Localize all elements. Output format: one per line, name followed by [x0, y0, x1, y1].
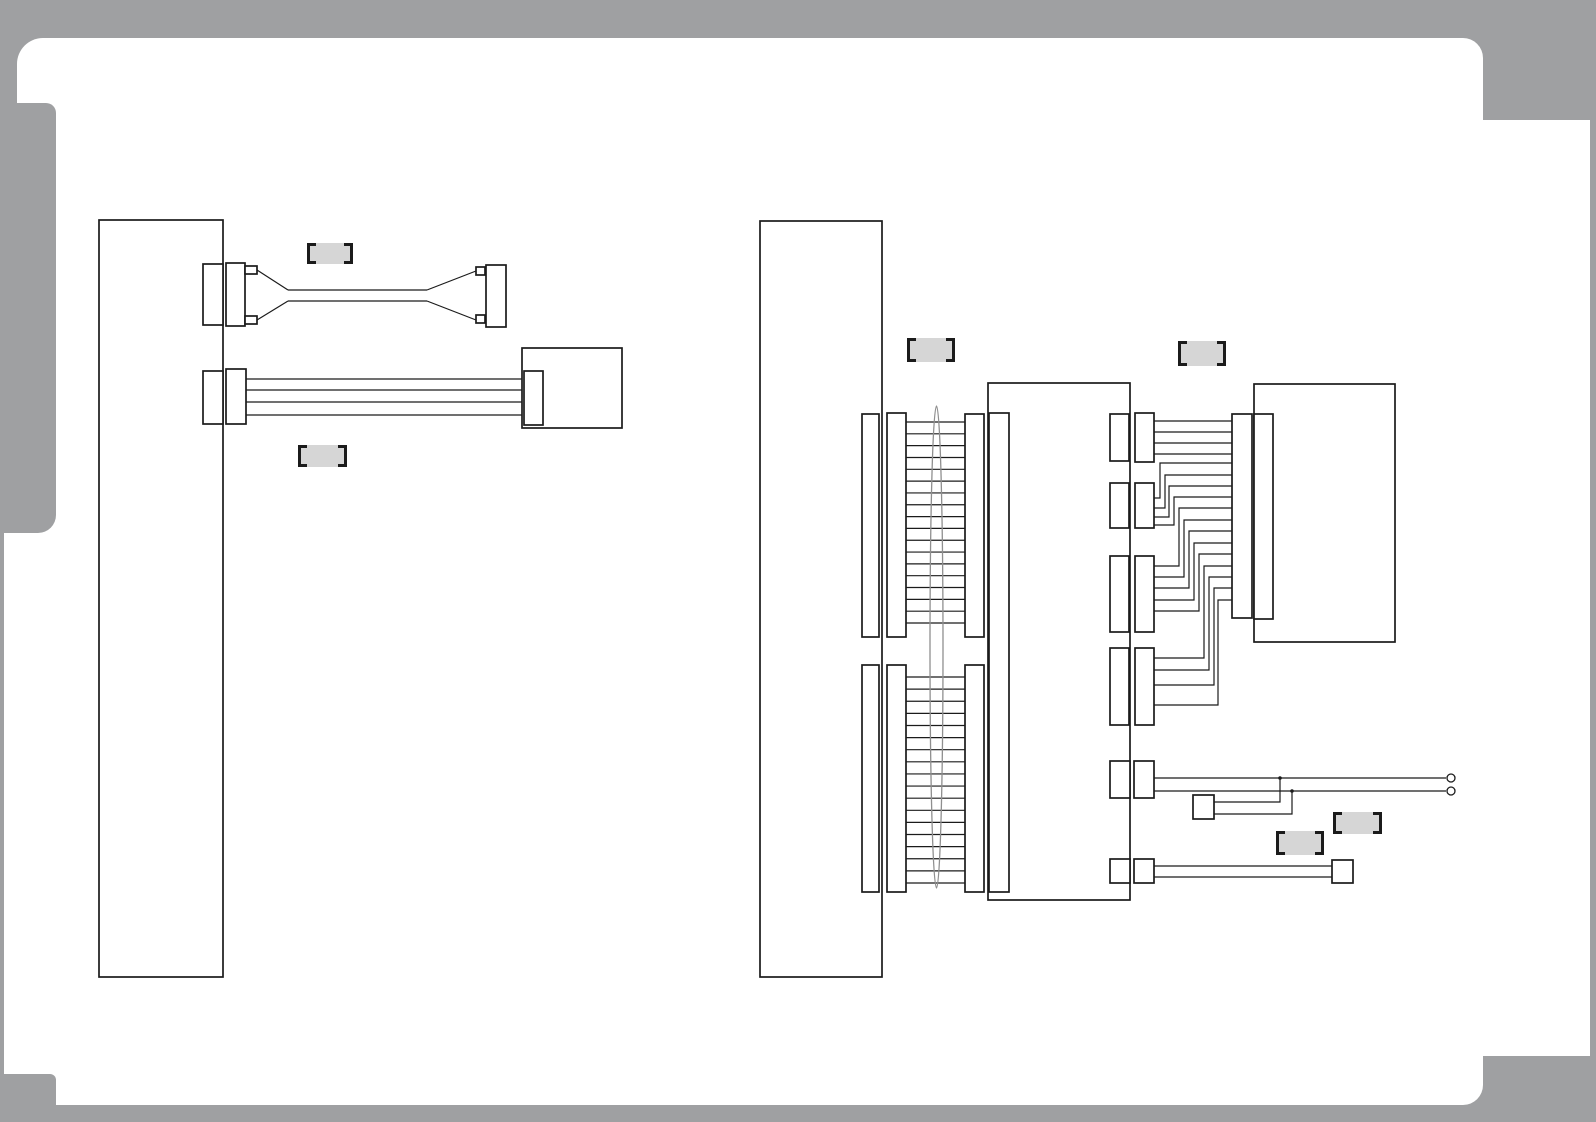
cable-pair-wires — [288, 290, 427, 301]
wire-junction — [1278, 776, 1282, 780]
right-board-assembly — [760, 221, 1455, 977]
lead-end-connector — [1332, 860, 1353, 883]
component-tap-wires — [1214, 778, 1292, 814]
unit-connector — [1110, 761, 1130, 798]
cable-connector — [486, 265, 506, 327]
label-fill — [300, 445, 345, 467]
label-fill — [1278, 831, 1322, 855]
cable-connector — [1135, 413, 1154, 462]
cable-fan-wire — [257, 270, 288, 290]
unit-connector — [1110, 556, 1129, 632]
label-fill — [1335, 812, 1380, 834]
cable-connector — [965, 414, 984, 637]
board-connector — [862, 665, 879, 892]
ring-terminal — [1447, 774, 1455, 782]
harness-wire — [1154, 554, 1232, 611]
cable-connector — [226, 263, 245, 326]
cable-connector-bar — [1232, 414, 1252, 618]
cable-fan-wire — [427, 301, 476, 320]
inline-component — [1193, 795, 1214, 819]
harness-wire — [1154, 497, 1232, 525]
unit-connector — [1110, 414, 1129, 461]
bottom-lead-assembly — [1110, 859, 1353, 883]
harness-wire — [1154, 520, 1232, 577]
part-label-6 — [1278, 831, 1323, 855]
ribbon-cable-wires — [246, 379, 524, 415]
cable-connector — [1135, 483, 1154, 528]
unit-connector — [1110, 483, 1129, 528]
wiring-diagram — [0, 0, 1596, 1122]
cable-bundle-loop — [930, 406, 943, 888]
ring-terminals — [1447, 774, 1455, 795]
harness-wire — [1154, 463, 1232, 498]
tap-wire — [1214, 778, 1280, 802]
board-connector — [203, 371, 223, 424]
harness-wire — [1154, 475, 1232, 508]
open-lead-assembly — [1110, 761, 1455, 819]
board-connector — [862, 414, 879, 637]
board-connector — [203, 264, 223, 325]
part-label-1 — [309, 243, 352, 264]
ribbon-ladder-wires — [906, 422, 965, 883]
harness-wire — [1154, 531, 1232, 588]
cable-fan-wire — [257, 301, 288, 320]
label-fill — [1180, 341, 1224, 366]
harness-wire — [1154, 543, 1232, 600]
cable-connector — [887, 665, 906, 892]
bottom-lead-wires — [1154, 866, 1332, 877]
cable-connector — [887, 413, 906, 637]
connector-tab — [476, 267, 485, 275]
connector-tab — [245, 266, 257, 274]
cable-connector — [1135, 556, 1154, 632]
label-fill — [909, 338, 953, 362]
unit-connector — [1110, 859, 1130, 883]
connector-tab — [245, 316, 257, 324]
harness-wire — [1154, 577, 1232, 670]
left-board-assembly — [99, 220, 622, 977]
unit-connector — [989, 413, 1009, 892]
side-unit-box — [1254, 384, 1395, 642]
part-label-3 — [909, 338, 954, 362]
ring-terminal — [1447, 787, 1455, 795]
harness-wire — [1154, 486, 1232, 517]
unit-connector-bar — [1254, 414, 1273, 619]
module-connector — [524, 371, 543, 425]
cable-fan-wire — [427, 271, 476, 290]
part-label-5 — [1335, 812, 1381, 834]
part-label-4 — [1180, 341, 1225, 366]
cable-connector — [965, 665, 984, 892]
cable-connector — [1135, 648, 1154, 725]
harness-wire — [1154, 566, 1232, 658]
label-fill — [309, 243, 351, 264]
cable-connector — [1134, 761, 1154, 798]
scanned-page — [0, 0, 1596, 1122]
wire-junction — [1290, 789, 1294, 793]
upper-cable-assembly — [203, 263, 506, 327]
unit-connector — [1110, 648, 1129, 725]
open-lead-wires — [1154, 778, 1446, 791]
left-circuit-board — [99, 220, 223, 977]
cable-connector — [1134, 859, 1154, 883]
harness-wire — [1154, 600, 1232, 705]
part-label-2 — [300, 445, 346, 467]
cable-connector — [226, 369, 246, 424]
harness-wires — [1154, 421, 1232, 705]
connector-tab — [476, 315, 485, 323]
lower-ribbon-assembly — [203, 348, 622, 428]
